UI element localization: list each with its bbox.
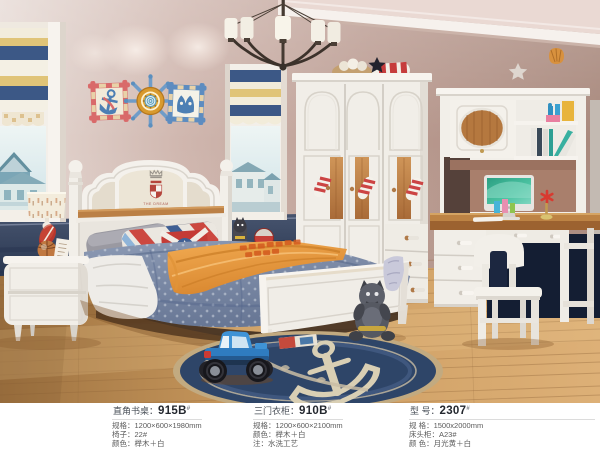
svg-text:THE DREAM: THE DREAM — [143, 202, 168, 206]
